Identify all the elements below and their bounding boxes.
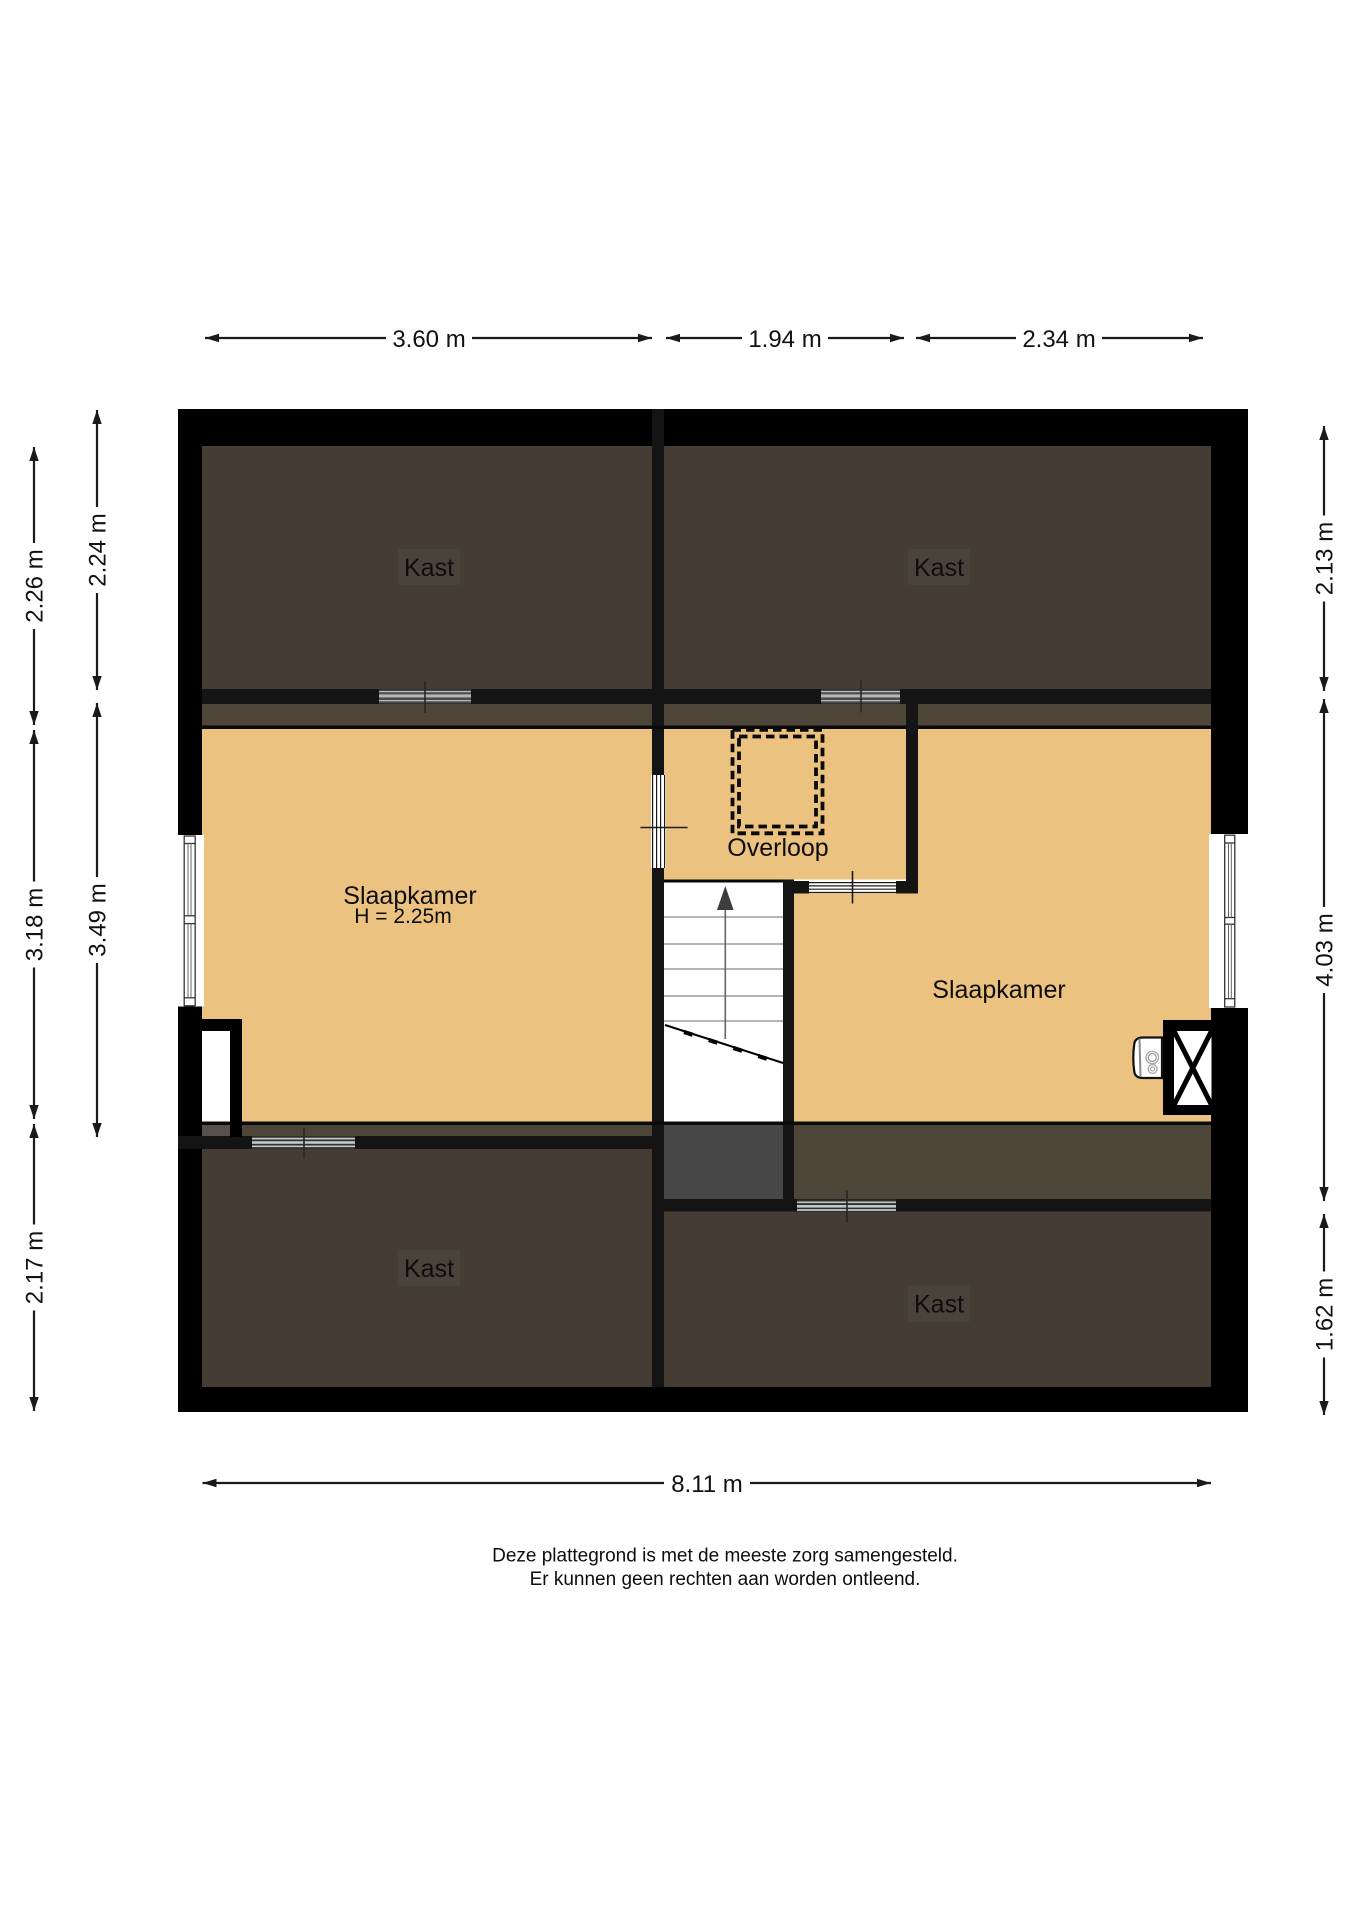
svg-text:Kast: Kast — [404, 1255, 454, 1283]
svg-text:Kast: Kast — [914, 554, 964, 582]
svg-text:4.03 m: 4.03 m — [1312, 913, 1339, 986]
svg-text:2.17 m: 2.17 m — [22, 1231, 49, 1304]
svg-text:1.62 m: 1.62 m — [1312, 1278, 1339, 1351]
svg-text:2.34 m: 2.34 m — [1022, 326, 1095, 353]
svg-text:3.18 m: 3.18 m — [22, 888, 49, 961]
svg-text:Kast: Kast — [914, 1291, 964, 1319]
svg-text:2.26 m: 2.26 m — [22, 549, 49, 622]
svg-text:3.49 m: 3.49 m — [85, 883, 112, 956]
svg-text:Kast: Kast — [404, 554, 454, 582]
svg-text:8.11 m: 8.11 m — [671, 1471, 743, 1498]
svg-text:3.60 m: 3.60 m — [392, 326, 465, 353]
svg-text:Overloop: Overloop — [727, 834, 828, 862]
svg-text:Deze plattegrond is met de mee: Deze plattegrond is met de meeste zorg s… — [492, 1546, 958, 1567]
svg-text:1.94 m: 1.94 m — [748, 326, 821, 353]
svg-text:Er kunnen geen rechten aan wor: Er kunnen geen rechten aan worden ontlee… — [530, 1569, 921, 1590]
svg-text:2.24 m: 2.24 m — [85, 513, 112, 586]
svg-text:2.13 m: 2.13 m — [1312, 522, 1339, 595]
svg-text:H = 2.25m: H = 2.25m — [354, 905, 451, 928]
svg-text:Slaapkamer: Slaapkamer — [932, 976, 1065, 1004]
